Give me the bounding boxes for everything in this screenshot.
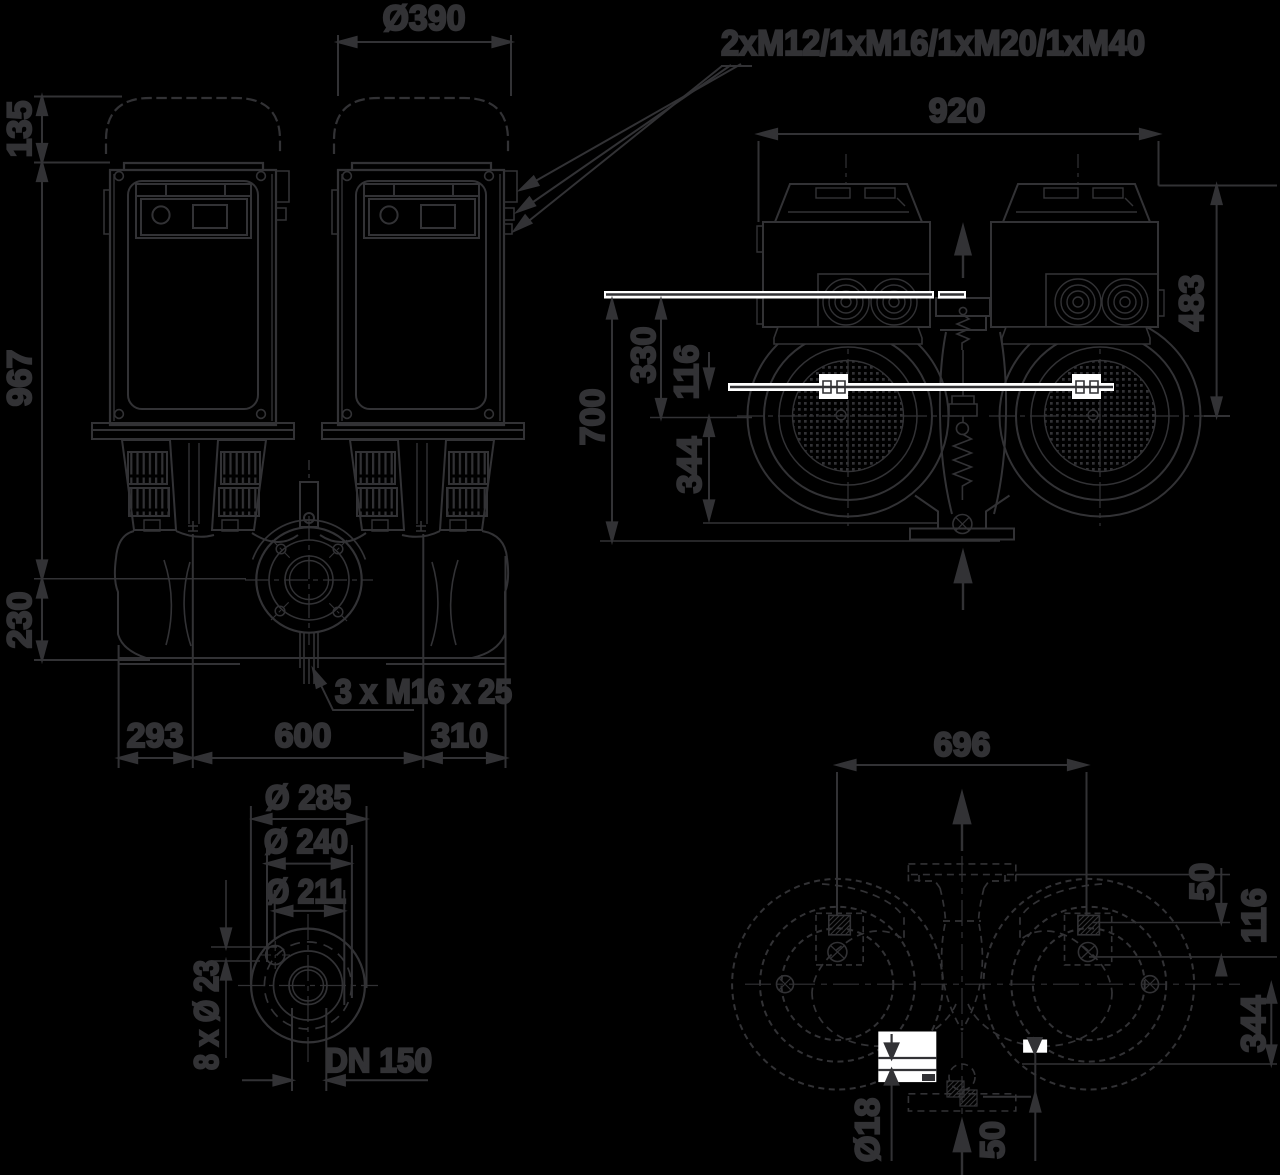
svg-text:Ø390: Ø390	[383, 0, 466, 38]
svg-text:600: 600	[275, 717, 332, 755]
svg-text:Ø18: Ø18	[849, 1098, 887, 1162]
svg-text:344: 344	[1235, 996, 1273, 1053]
svg-text:116: 116	[668, 345, 706, 400]
svg-text:Ø 211: Ø 211	[266, 873, 346, 911]
svg-text:2xM12/1xM16/1xM20/1xM40: 2xM12/1xM16/1xM20/1xM40	[721, 24, 1145, 63]
svg-text:700: 700	[574, 389, 612, 446]
svg-text:696: 696	[934, 726, 991, 764]
svg-text:967: 967	[1, 350, 39, 407]
svg-text:920: 920	[929, 92, 986, 130]
svg-text:116: 116	[1235, 888, 1273, 943]
svg-text:135: 135	[1, 101, 39, 158]
svg-text:8 x Ø 23: 8 x Ø 23	[188, 960, 226, 1070]
svg-text:230: 230	[1, 592, 39, 649]
svg-text:DN 150: DN 150	[325, 1042, 432, 1080]
svg-text:Ø 285: Ø 285	[265, 779, 351, 817]
svg-text:310: 310	[431, 717, 488, 755]
svg-text:Ø 240: Ø 240	[264, 823, 348, 861]
svg-text:330: 330	[625, 327, 663, 384]
svg-text:50: 50	[1184, 863, 1222, 901]
svg-text:344: 344	[671, 437, 709, 494]
svg-text:50: 50	[974, 1121, 1012, 1159]
svg-text:293: 293	[127, 717, 184, 755]
svg-text:483: 483	[1173, 275, 1211, 332]
